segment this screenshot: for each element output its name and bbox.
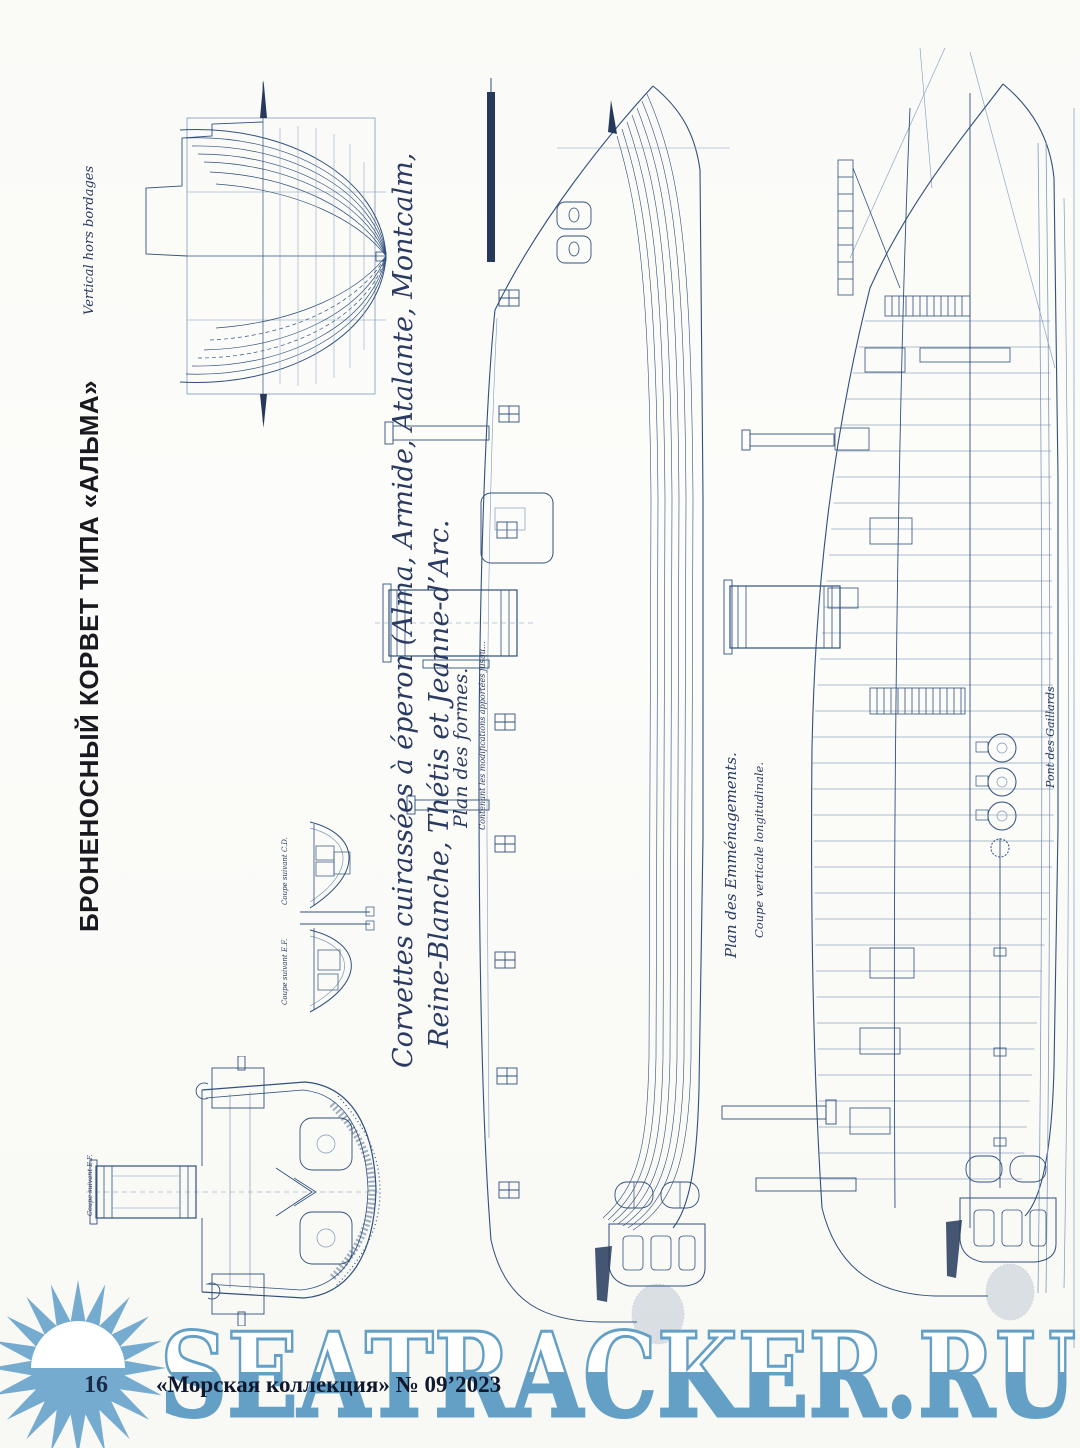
body-plan-drawing bbox=[140, 72, 395, 432]
scanned-page: БРОНЕНОСНЫЙ КОРВЕТ ТИПА «АЛЬМА» Vertical… bbox=[0, 0, 1080, 1448]
boiler-lower bbox=[300, 1212, 352, 1264]
caption-coupe-ef-small: Coupe suivant E.F. bbox=[281, 939, 289, 1005]
rudder bbox=[595, 1246, 612, 1302]
caption-plan-formes: Plan des formes. bbox=[450, 668, 472, 828]
caption-main-line1: Corvettes cuirassées à éperon (Alma, Arm… bbox=[388, 153, 419, 1068]
mast bbox=[487, 92, 495, 262]
caption-coupe-cd: Coupe suivant C.D. bbox=[281, 837, 289, 905]
bow-railing bbox=[838, 160, 900, 295]
inboard-profile-drawing bbox=[720, 48, 1080, 1348]
body-plan-label: Vertical hors bordages bbox=[82, 166, 97, 315]
topmast bbox=[608, 100, 617, 134]
boiler-upper bbox=[300, 1118, 352, 1170]
caption-pont-gaillards: Pont des Gaillards bbox=[1044, 686, 1057, 788]
page-title: БРОНЕНОСНЫЙ КОРВЕТ ТИПА «АЛЬМА» bbox=[74, 380, 105, 932]
caption-plan-formes-note: Contenant les modifications apportées ju… bbox=[478, 641, 487, 830]
caption-coupe-verticale: Coupe verticale longitudinale. bbox=[752, 762, 766, 938]
rudder-right bbox=[946, 1220, 962, 1278]
stern-gallery bbox=[609, 1182, 705, 1286]
page-number: 16 bbox=[84, 1372, 108, 1399]
sun-logo-icon bbox=[0, 1276, 173, 1448]
caption-coupe-ef-large: Coupe suivant E.F. bbox=[86, 1154, 94, 1216]
gunports bbox=[495, 290, 519, 1198]
magazine-credit: «Морская коллекция» № 09’2023 bbox=[156, 1372, 501, 1398]
caption-plan-emmenagements: Plan des Emménagements. bbox=[722, 752, 740, 958]
